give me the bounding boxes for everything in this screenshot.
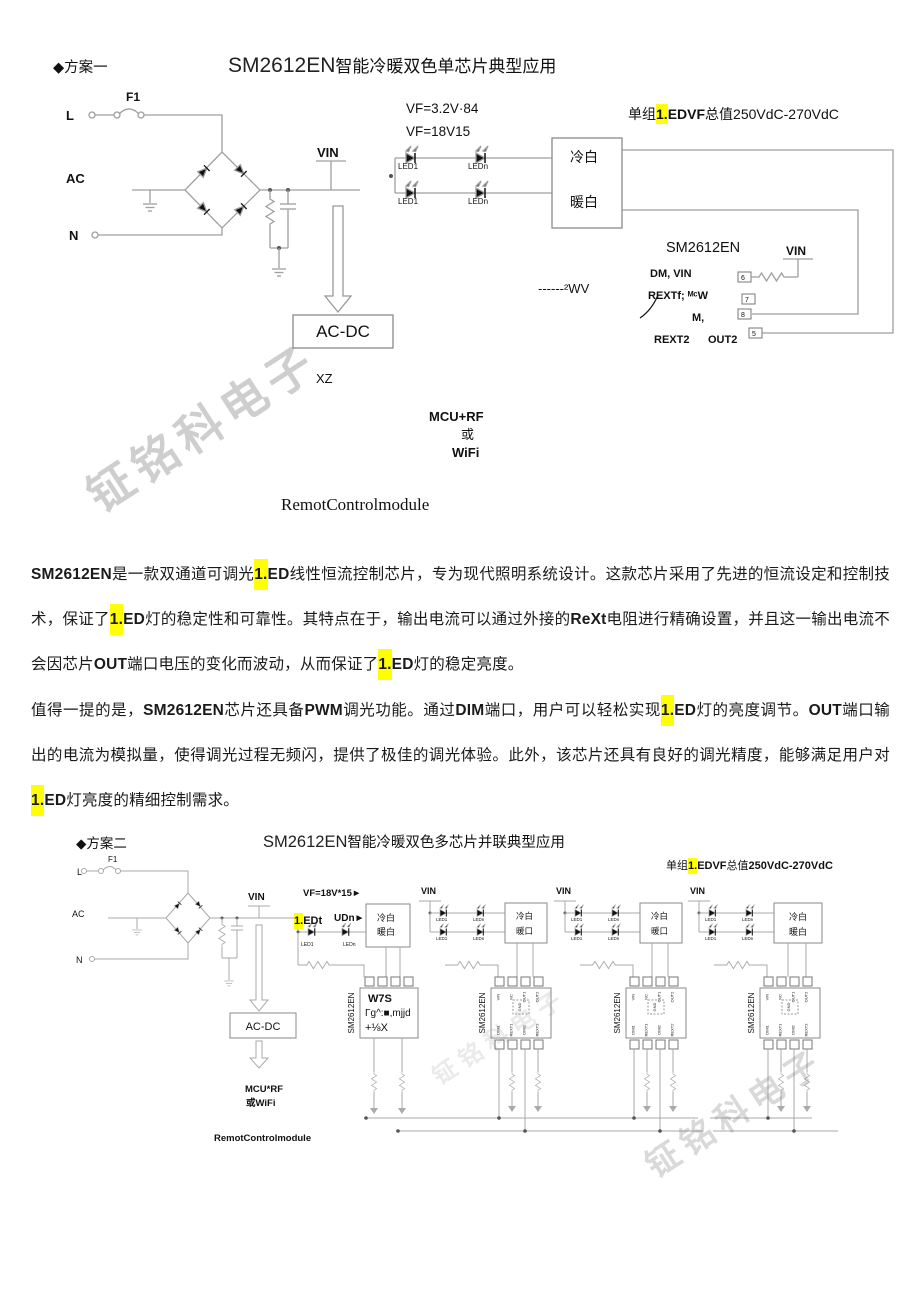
label-led1: LED1 [398, 197, 419, 206]
wifi-label: WiFi [452, 445, 479, 460]
res-note: ------²WV [538, 281, 590, 296]
label-ledn: LEDn [468, 197, 488, 206]
text-segment: OUT [809, 702, 842, 719]
paragraph-2: 值得一提的是，SM2612EN芯片还具备PWM调光功能。通过DIM端口，用户可以… [31, 688, 890, 823]
scheme1-group-label: 单组1.EDVF总值250VdC-270VdC [628, 104, 839, 124]
text-segment: 值得一提的是， [31, 702, 143, 719]
svg-text:LEDn: LEDn [608, 917, 620, 922]
text-segment: 250VdC-270VdC [749, 860, 833, 872]
text-segment: ED [123, 611, 145, 628]
svg-text:VIN: VIN [421, 886, 436, 896]
remote-label: RemotControlmodule [281, 495, 429, 515]
scheme2-labels: L F1 AC N VIN VF=18V*15► LED1 LEDn 冷白 暖白… [72, 855, 809, 1144]
svg-text:DIM1: DIM1 [765, 1024, 770, 1034]
text-segment: ED [44, 792, 66, 809]
pin-num: 7 [745, 297, 749, 304]
text-segment: 1. [110, 604, 123, 635]
remote-label-2: RemotControlmodule [214, 1133, 311, 1144]
text-segment: 1. [656, 104, 668, 124]
text-segment: 1. [254, 559, 267, 590]
label-n-2: N [76, 955, 83, 965]
pin-num: 5 [752, 331, 756, 338]
svg-text:OUT1: OUT1 [522, 991, 527, 1002]
label-l: L [66, 108, 74, 123]
warm-m0: 暖白 [377, 926, 395, 937]
text-segment: EDVF [668, 106, 705, 122]
text-segment: 调光功能。通过 [343, 702, 455, 719]
chip-title: SM2612EN [666, 240, 740, 256]
text-segment: 总值 [705, 106, 733, 122]
label-vf-2: VF=18V*15► [303, 888, 361, 899]
text-segment: 端口，用户可以轻松实现 [484, 702, 661, 719]
svg-text:SM2612EN: SM2612EN [478, 992, 487, 1033]
pin-row4b: OUT2 [708, 334, 737, 346]
document-page: L F1 AC N VIN VF=3.2V·84 VF=18V15 LED1 L… [0, 0, 920, 1301]
pin-num: 6 [741, 275, 745, 282]
svg-text:OUT2: OUT2 [535, 991, 540, 1002]
svg-text:VIN: VIN [556, 886, 571, 896]
xz-label: XZ [316, 371, 333, 386]
chip0-vertical-name: SM2612EN [347, 992, 356, 1033]
scheme1-circuit [89, 109, 893, 348]
chip0-line1: W7S [368, 993, 392, 1005]
svg-text:VIN: VIN [765, 994, 770, 1001]
text-segment: 1. [661, 695, 674, 726]
text-segment: 1. [31, 785, 44, 816]
svg-text:LEDn: LEDn [742, 936, 754, 941]
mcu-label-2: MCU*RF [245, 1084, 283, 1095]
svg-text:暖白: 暖白 [789, 926, 807, 937]
label-l2: L [77, 867, 82, 877]
svg-text:LED1: LED1 [705, 936, 717, 941]
svg-text:LEDn: LEDn [473, 917, 485, 922]
led-big-label-2: UDn► [334, 913, 364, 924]
pin-row3: M, [692, 312, 704, 324]
svg-text:暖口: 暖口 [651, 926, 668, 936]
label-vin-main-2: VIN [248, 892, 265, 903]
or-label: 或 [461, 427, 474, 442]
text-segment: 单组 [666, 860, 688, 872]
svg-text:NC: NC [509, 994, 514, 1000]
scheme2-circuit [82, 867, 839, 1133]
text-segment: 芯片还具备 [224, 702, 304, 719]
text-segment: 灯亮度的精细控制需求。 [66, 792, 239, 809]
svg-text:NC: NC [644, 994, 649, 1000]
led-array [389, 146, 552, 198]
text-segment: 1. [688, 858, 697, 874]
text-segment: 250VdC-270VdC [733, 106, 839, 122]
scheme2-title-en: SM2612EN [263, 833, 347, 851]
text-segment: 1. [294, 913, 303, 929]
text-segment: DIM [455, 702, 484, 719]
scheme1-labels: L F1 AC N VIN VF=3.2V·84 VF=18V15 LED1 L… [66, 90, 806, 460]
led1-m0: LED1 [301, 942, 314, 948]
bridge-rectifier [185, 152, 260, 228]
svg-text:SM2612EN: SM2612EN [613, 992, 622, 1033]
svg-text:冷白: 冷白 [516, 911, 533, 921]
text-segment: OUT [94, 656, 127, 673]
svg-text:LED1: LED1 [436, 936, 448, 941]
svg-text:冷白: 冷白 [789, 911, 807, 922]
label-n: N [69, 228, 78, 243]
scheme1-bullet: ◆方案一 [53, 56, 108, 77]
svg-text:GND: GND [652, 1002, 657, 1011]
text-segment: PWM [304, 702, 342, 719]
scheme2-group-label: 单组1.EDVF总值250VdC-270VdC [666, 857, 833, 873]
acdc-label-2: AC-DC [246, 1021, 281, 1033]
svg-text:SM2612EN: SM2612EN [747, 992, 756, 1033]
orwifi-label-2: 或WiFi [246, 1097, 275, 1109]
svg-text:DIM2: DIM2 [522, 1024, 527, 1034]
scheme2-title: SM2612EN智能冷暖双色多芯片并联典型应用 [263, 831, 565, 852]
chip0-line2: Γg^:■,mjjd [365, 1008, 411, 1019]
scheme1-title-zh: 智能冷暖双色单芯片典型应用 [335, 57, 556, 76]
mcu-label: MCU+RF [429, 409, 484, 424]
ledn-m0: LEDn [343, 942, 356, 948]
label-ledn: LEDn [468, 162, 488, 171]
label-f1: F1 [126, 90, 140, 104]
svg-text:LEDn: LEDn [608, 936, 620, 941]
svg-text:REXT2: REXT2 [535, 1023, 540, 1037]
text-segment: ReXt [570, 611, 606, 628]
bridge-rectifier-2 [166, 893, 210, 943]
text-segment: ED [674, 702, 696, 719]
svg-text:OUT2: OUT2 [804, 991, 809, 1002]
svg-text:REXT2: REXT2 [670, 1023, 675, 1037]
text-segment: SM2612EN [143, 702, 224, 719]
text-segment: 1. [378, 649, 391, 680]
text-segment: 灯的稳定性和可靠性。其特点在于，输出电流可以通过外接的 [145, 611, 570, 628]
svg-text:REXT1: REXT1 [644, 1023, 649, 1037]
svg-text:REXT2: REXT2 [804, 1023, 809, 1037]
cold-m0: 冷白 [377, 912, 395, 923]
text-segment: EDt [303, 915, 322, 927]
svg-text:DIM1: DIM1 [496, 1024, 501, 1034]
svg-text:OUT1: OUT1 [791, 991, 796, 1002]
scheme2-title-zh: 智能冷暖双色多芯片并联典型应用 [347, 835, 565, 851]
pin-row2: REXTf; ᴹᶜW [648, 290, 709, 302]
chip0-line3: +⅛X [365, 1022, 389, 1034]
label-f1-2: F1 [108, 855, 118, 864]
pin-num: 8 [741, 312, 745, 319]
svg-text:GND: GND [786, 1002, 791, 1011]
scheme1-title: SM2612EN智能冷暖双色单芯片典型应用 [228, 52, 556, 78]
svg-text:暖口: 暖口 [516, 926, 533, 936]
svg-text:LED1: LED1 [571, 936, 583, 941]
text-segment: ED [268, 566, 290, 583]
label-vin2: VIN [786, 244, 806, 258]
svg-text:DIM2: DIM2 [657, 1024, 662, 1034]
svg-text:REXT1: REXT1 [778, 1023, 783, 1037]
text-segment: ED [392, 656, 414, 673]
svg-text:LED1: LED1 [436, 917, 448, 922]
svg-text:冷白: 冷白 [651, 911, 668, 921]
svg-text:VIN: VIN [631, 994, 636, 1001]
text-segment: EDVF [697, 860, 726, 872]
text-segment: 是一款双通道可调光 [112, 566, 254, 583]
label-led1: LED1 [398, 162, 419, 171]
text-segment: 灯的稳定亮度。 [414, 656, 524, 673]
svg-text:OUT2: OUT2 [670, 991, 675, 1002]
svg-text:OUT1: OUT1 [657, 991, 662, 1002]
text-segment: 单组 [628, 106, 656, 122]
svg-text:NC: NC [778, 994, 783, 1000]
label-warm-white: 暖白 [570, 194, 598, 210]
pin-row4a: REXT2 [654, 334, 689, 346]
scheme2-bullet: ◆方案二 [76, 832, 127, 852]
led-big-label: 1.EDt [294, 915, 322, 927]
svg-text:LED1: LED1 [571, 917, 583, 922]
svg-text:LED1: LED1 [705, 917, 717, 922]
label-ac: AC [66, 171, 85, 186]
label-ac-2: AC [72, 909, 85, 919]
svg-text:VIN: VIN [690, 886, 705, 896]
text-segment: SM2612EN [31, 566, 112, 583]
scheme1-title-en: SM2612EN [228, 54, 335, 77]
label-vf1: VF=3.2V·84 [406, 101, 479, 116]
svg-text:DIM2: DIM2 [791, 1024, 796, 1034]
text-segment: 总值 [727, 860, 749, 872]
pin-row1: DM, VIN [650, 268, 692, 280]
svg-text:DIM1: DIM1 [631, 1024, 636, 1034]
label-vin: VIN [317, 145, 339, 160]
label-cold-white: 冷白 [570, 149, 598, 165]
paragraph-1: SM2612EN是一款双通道可调光1.ED线性恒流控制芯片，专为现代照明系统设计… [31, 552, 890, 687]
svg-text:LEDn: LEDn [473, 936, 485, 941]
text-segment: 灯的亮度调节。 [696, 702, 808, 719]
text-segment: 端口电压的变化而波动，从而保证了 [127, 656, 378, 673]
svg-text:GND: GND [517, 1002, 522, 1011]
svg-text:LEDn: LEDn [742, 917, 754, 922]
svg-text:REXT1: REXT1 [509, 1023, 514, 1037]
acdc-label: AC-DC [316, 322, 370, 341]
label-vf2: VF=18V15 [406, 124, 470, 139]
svg-text:VIN: VIN [496, 994, 501, 1001]
